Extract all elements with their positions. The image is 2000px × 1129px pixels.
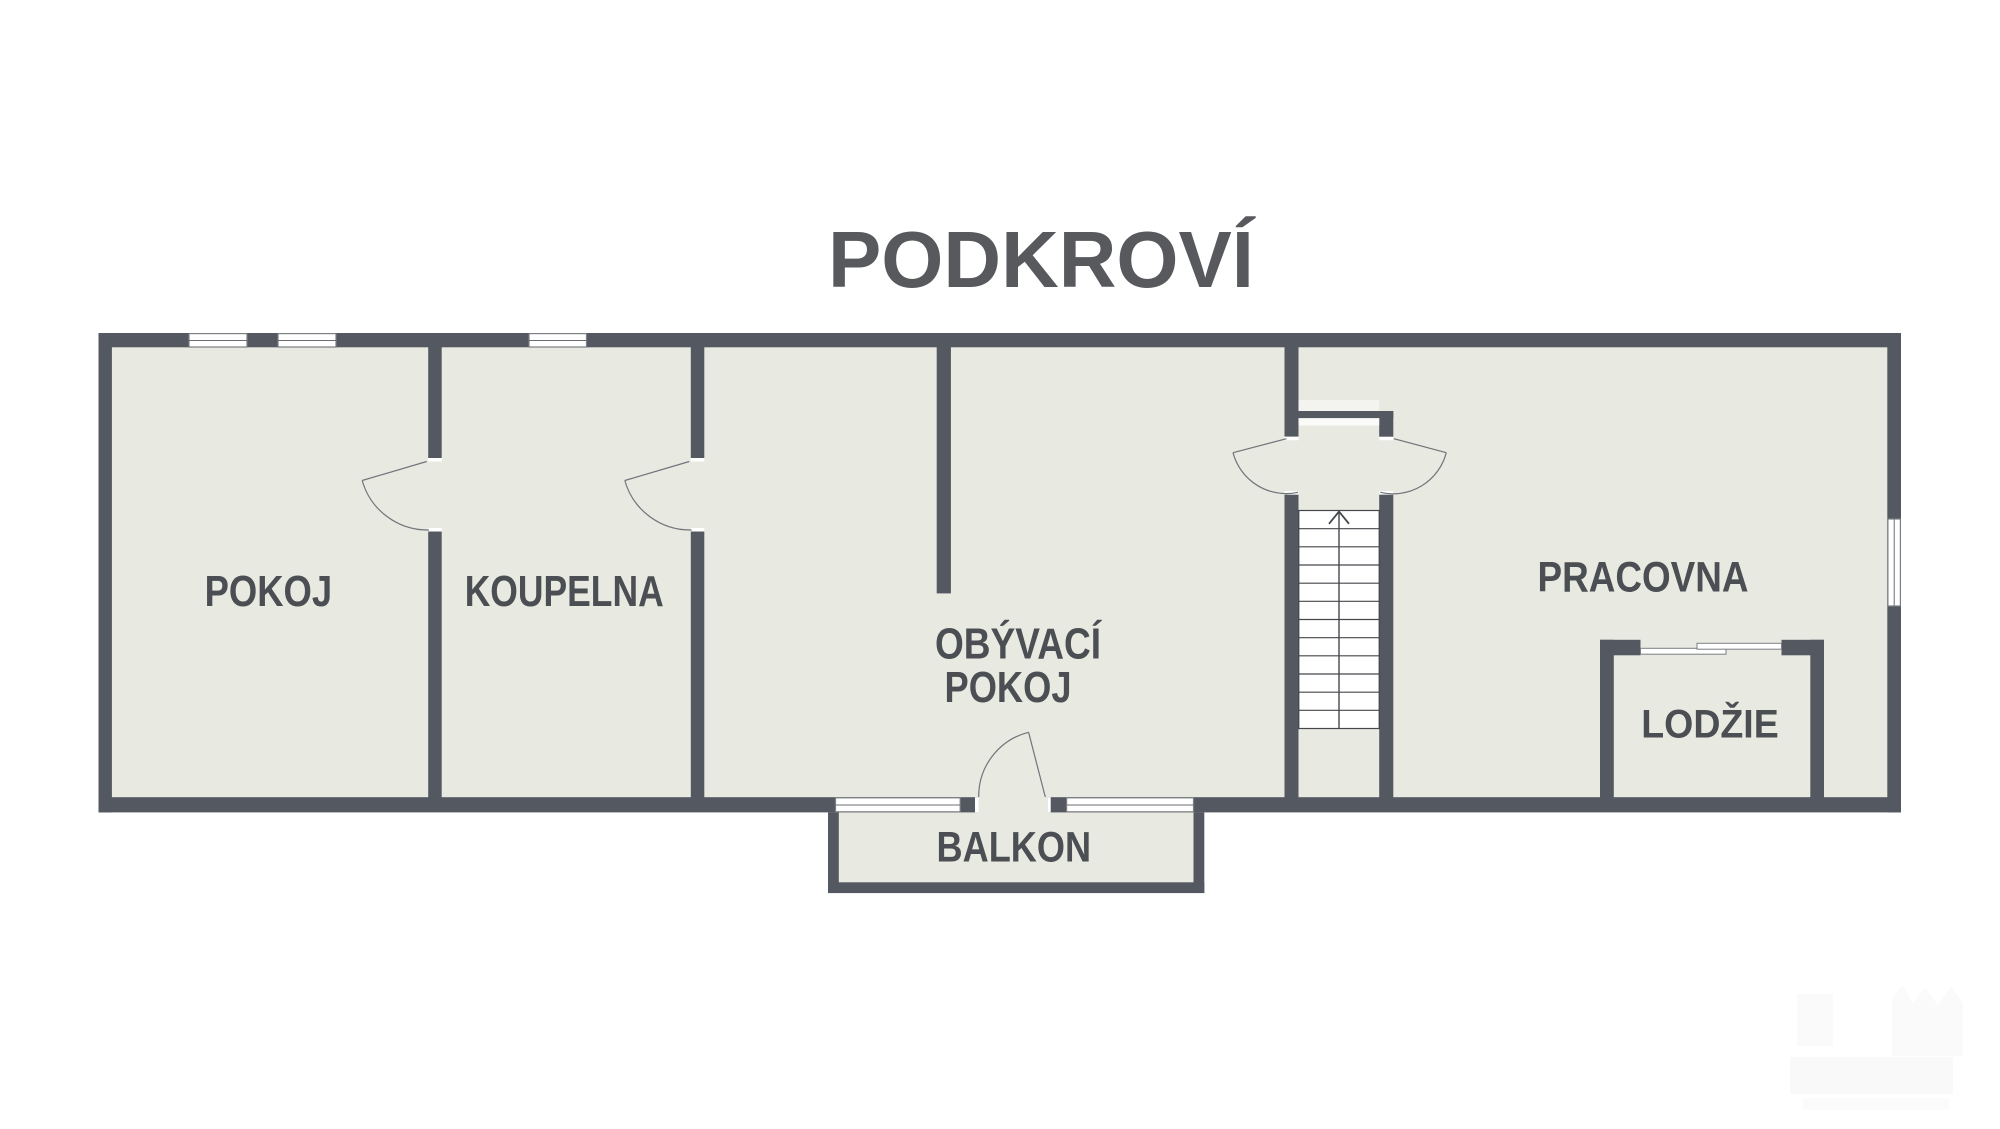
svg-text:BALKON: BALKON [937, 824, 1092, 872]
svg-text:OBÝVACÍ: OBÝVACÍ [935, 619, 1103, 669]
svg-text:LODŽIE: LODŽIE [1641, 701, 1779, 747]
svg-text:PRACOVNA: PRACOVNA [1538, 554, 1749, 602]
svg-text:KOUPELNA: KOUPELNA [465, 568, 664, 616]
svg-text:POKOJ: POKOJ [945, 664, 1072, 712]
svg-text:PODKROVÍ: PODKROVÍ [828, 215, 1256, 304]
svg-text:POKOJ: POKOJ [205, 568, 333, 616]
